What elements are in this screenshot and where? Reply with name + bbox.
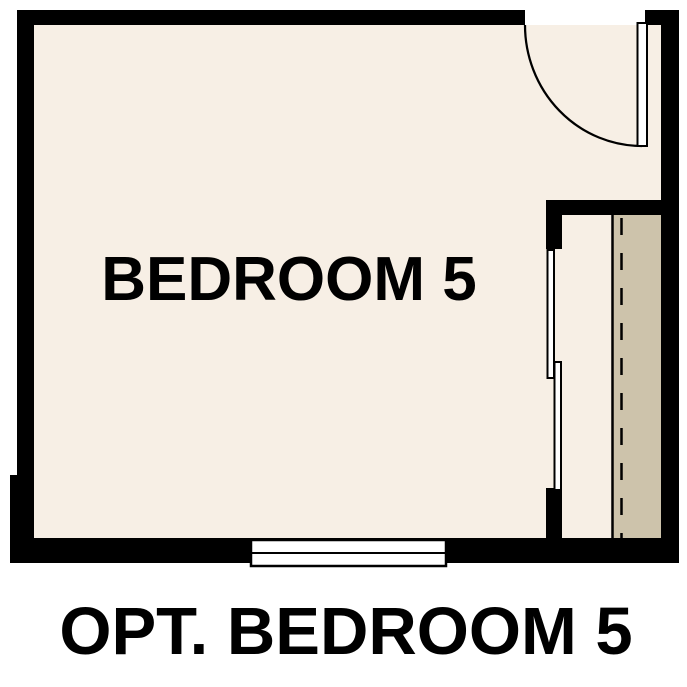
closet-bypass-door-left <box>548 250 555 378</box>
left-wall-upper <box>17 10 34 476</box>
caption-label: OPT. BEDROOM 5 <box>59 594 632 669</box>
closet-bypass-door-right <box>555 362 562 490</box>
closet-front-wall <box>547 200 679 215</box>
top-wall <box>17 10 525 25</box>
floorplan-page: BEDROOM 5 OPT. BEDROOM 5 <box>0 0 687 687</box>
closet-jamb-lower <box>546 488 562 563</box>
right-wall <box>661 10 679 563</box>
floorplan-drawing: BEDROOM 5 OPT. BEDROOM 5 <box>0 0 687 687</box>
closet-floor <box>562 215 613 538</box>
room-floor-upper <box>34 25 661 201</box>
room-label: BEDROOM 5 <box>101 245 476 314</box>
closet-jamb-upper <box>546 200 562 249</box>
closet-shelf <box>613 215 661 538</box>
door-leaf <box>638 23 648 146</box>
